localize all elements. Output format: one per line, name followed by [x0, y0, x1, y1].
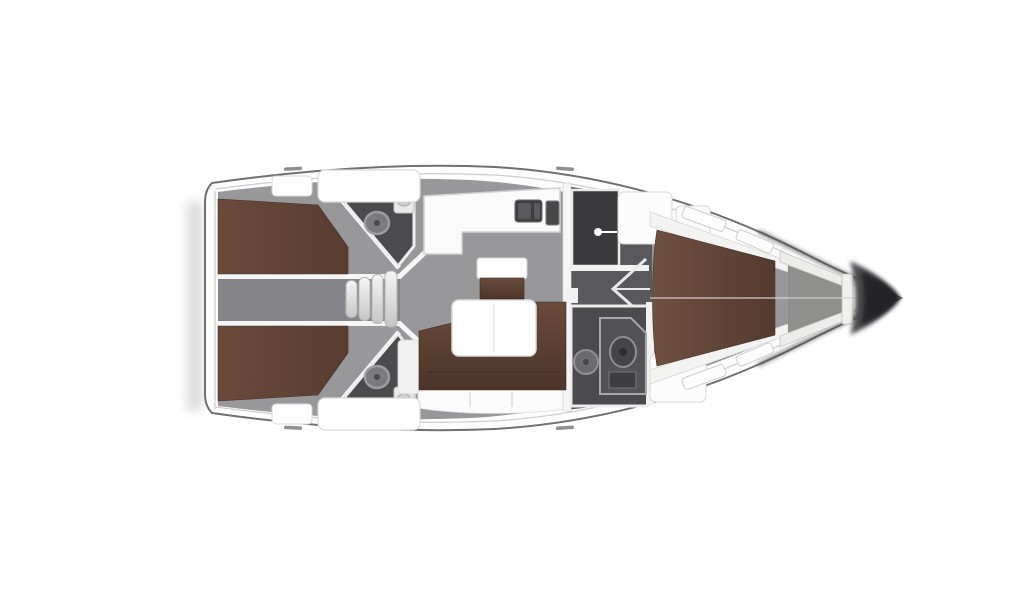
companionway-step-1 — [346, 281, 357, 318]
shower-drain — [619, 348, 627, 356]
floorplan-regions — [186, 166, 901, 430]
deck-hatch-aft-top-small — [272, 176, 312, 196]
sideboard-top — [477, 258, 527, 279]
companionway-step-2 — [359, 278, 370, 321]
companionway-step-3 — [372, 275, 383, 324]
shower-tray — [609, 372, 636, 388]
companionway-step-4 — [385, 271, 397, 327]
deck-hatch-aft-bottom-small — [272, 404, 312, 424]
passage-wall-notch — [566, 288, 578, 303]
hull-fitting-bottom-1 — [284, 426, 302, 430]
aft-head-port-toilet-drain — [374, 220, 380, 226]
hull-fitting-top-1 — [284, 167, 302, 171]
sofa-side-step — [398, 340, 419, 394]
deck-hatch-aft-bottom — [318, 398, 420, 430]
galley-sink-bowl-left — [518, 203, 531, 219]
galley-sink-bowl-right — [534, 203, 540, 219]
yacht-floorplan-canvas — [0, 0, 1024, 600]
deck-band-below-sofa — [418, 389, 566, 413]
bow-bulkhead — [842, 274, 853, 324]
forward-head-toilet-drain — [583, 359, 589, 365]
yacht-floorplan-image — [0, 0, 1024, 600]
deck-hatch-aft-top — [318, 170, 420, 202]
stern-shadow — [186, 200, 203, 412]
aft-head-door — [572, 190, 619, 266]
sideboard-base — [480, 278, 524, 299]
galley-stove — [546, 201, 559, 225]
hull-fitting-top-2 — [556, 166, 574, 171]
hull-fitting-bottom-2 — [556, 425, 574, 430]
aft-head-starboard-toilet-drain — [374, 374, 380, 380]
